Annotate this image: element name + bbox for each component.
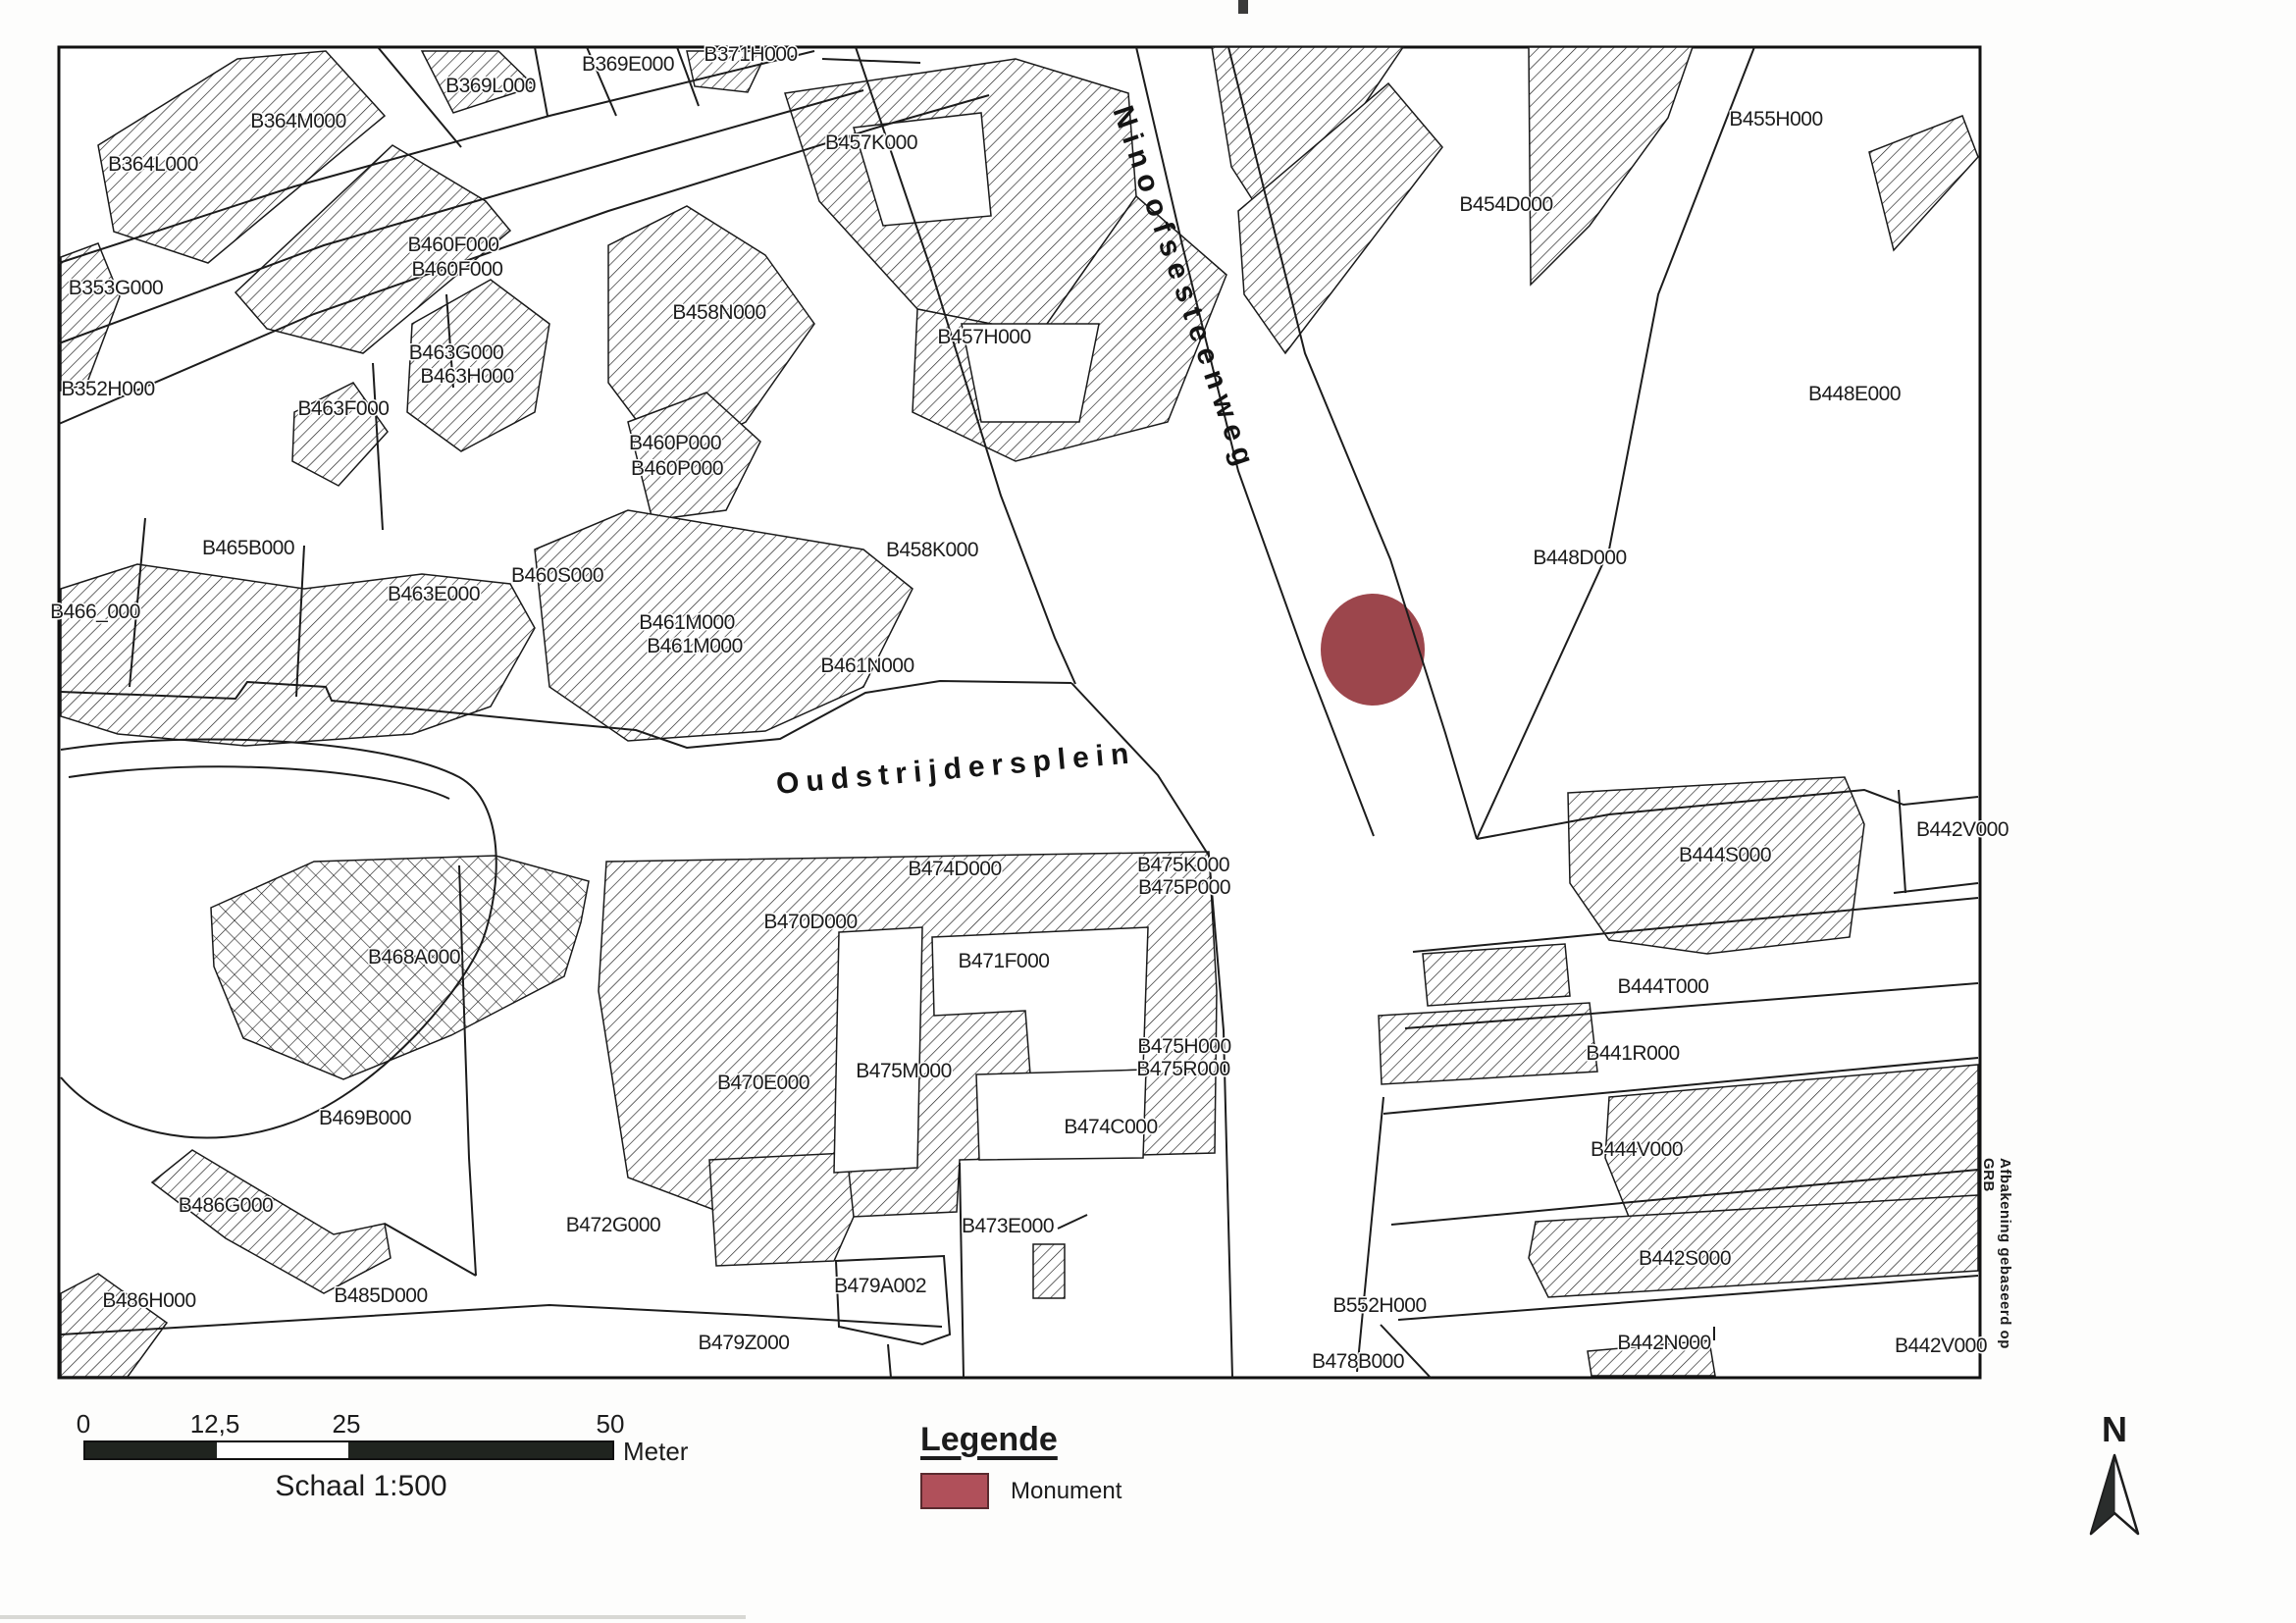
north-arrow-glyph: [2085, 1450, 2144, 1539]
parcel-label: B461N000: [820, 654, 913, 677]
parcel-label: B442V000: [1895, 1335, 1987, 1357]
parcel-label: B461M000: [639, 611, 735, 634]
parcel-label: B448E000: [1808, 383, 1901, 405]
parcel-label: B457H000: [937, 326, 1030, 348]
parcel-label: B463G000: [409, 341, 503, 364]
parcel-label: B479Z000: [699, 1332, 790, 1354]
parcel-label: B442N000: [1617, 1332, 1710, 1354]
legend-title: Legende: [920, 1421, 1122, 1459]
parcel-label: B463E000: [388, 583, 480, 605]
parcel-label: B458K000: [886, 539, 978, 561]
parcel-label: B485D000: [334, 1284, 427, 1307]
scale-tick: 25: [333, 1409, 361, 1440]
parcel-label: B472G000: [566, 1214, 660, 1236]
parcel-label: B475M000: [856, 1060, 952, 1082]
parcel-label: B460P000: [629, 432, 721, 454]
scale-bar-graphic: [83, 1440, 614, 1460]
parcel-label: B369L000: [445, 75, 536, 97]
parcel-label: B444S000: [1679, 844, 1771, 866]
parcel-label: B364L000: [108, 153, 198, 176]
parcel-label: B460S000: [511, 564, 603, 587]
scale-unit: Meter: [623, 1437, 688, 1467]
parcel-label: B465B000: [202, 537, 294, 559]
parcel-label: B466_000: [50, 601, 140, 623]
scale-tick: 0: [77, 1409, 90, 1440]
scale-seg-white: [217, 1442, 348, 1458]
parcel-label: B471F000: [959, 950, 1050, 972]
legend: Legende Monument: [920, 1421, 1122, 1509]
parcel-label: B460F000: [412, 258, 503, 281]
scale-seg-black-1: [85, 1442, 217, 1458]
scan-artifact: [0, 1615, 746, 1619]
scale-caption: Schaal 1:500: [275, 1470, 446, 1503]
parcel-label: B364M000: [250, 110, 346, 132]
parcel-label: B470E000: [717, 1072, 809, 1094]
parcel-label: B473E000: [962, 1215, 1054, 1237]
north-label: N: [2102, 1409, 2127, 1450]
parcel-label: B475K000: [1137, 854, 1229, 876]
parcel-label: B454D000: [1459, 193, 1552, 216]
parcel-label: B478B000: [1312, 1350, 1404, 1373]
parcel-label: B448D000: [1533, 547, 1626, 569]
parcel-label: B444T000: [1618, 975, 1709, 998]
parcel-label: B469B000: [319, 1107, 411, 1129]
parcel-label: B463F000: [298, 397, 390, 420]
parcel-label: B455H000: [1729, 108, 1822, 131]
parcel-label: B474D000: [908, 858, 1001, 880]
scale-bar: 012,52550 Meter Schaal 1:500: [83, 1409, 770, 1527]
monument-swatch: [920, 1473, 989, 1509]
parcel-label: B442V000: [1916, 818, 2009, 841]
margin-note: Afbakening gebaseerd op GRB: [1980, 1158, 2013, 1384]
parcel-label: B552H000: [1332, 1294, 1426, 1317]
parcel-label: B470D000: [763, 911, 857, 933]
parcel-label: B463H000: [420, 365, 513, 388]
parcel-label: B486H000: [102, 1289, 195, 1312]
parcel-label: B353G000: [69, 277, 163, 299]
parcel-label: B461M000: [647, 635, 743, 657]
parcel-label: B479A002: [834, 1275, 926, 1297]
scale-tick: 12,5: [190, 1409, 240, 1440]
parcel-label: B369E000: [582, 53, 674, 76]
legend-item-monument: Monument: [920, 1473, 1122, 1509]
monument-label: Monument: [1011, 1478, 1122, 1505]
parcel-label: B460P000: [631, 457, 723, 480]
parcel-label: B441R000: [1586, 1042, 1679, 1065]
parcel-label: B474C000: [1064, 1116, 1157, 1138]
parcel-label: B468A000: [368, 946, 460, 969]
parcel-label: B475H000: [1137, 1035, 1230, 1058]
scale-seg-black-2: [348, 1442, 612, 1458]
parcel-label: B475R000: [1136, 1058, 1229, 1080]
cadastral-map: B364M000B364L000B369L000B369E000B371H000…: [0, 0, 2296, 1623]
parcel-label: B442S000: [1639, 1247, 1731, 1270]
parcel-label: B475P000: [1138, 876, 1230, 899]
parcel-label: B444V000: [1591, 1138, 1683, 1161]
parcel-label: B486G000: [179, 1194, 273, 1217]
parcel-label: B352H000: [61, 378, 154, 400]
scanned-map-page: B364M000B364L000B369L000B369E000B371H000…: [0, 0, 2296, 1623]
parcel-label: B457K000: [825, 131, 917, 154]
scan-artifact: [1238, 0, 1248, 14]
scale-tick: 50: [597, 1409, 625, 1440]
north-arrow: N: [2080, 1409, 2149, 1539]
monument-marker: [1321, 594, 1425, 706]
parcel-label: B371H000: [704, 43, 797, 66]
parcel-label: B458N000: [672, 301, 765, 324]
parcel-label: B460F000: [408, 234, 499, 256]
